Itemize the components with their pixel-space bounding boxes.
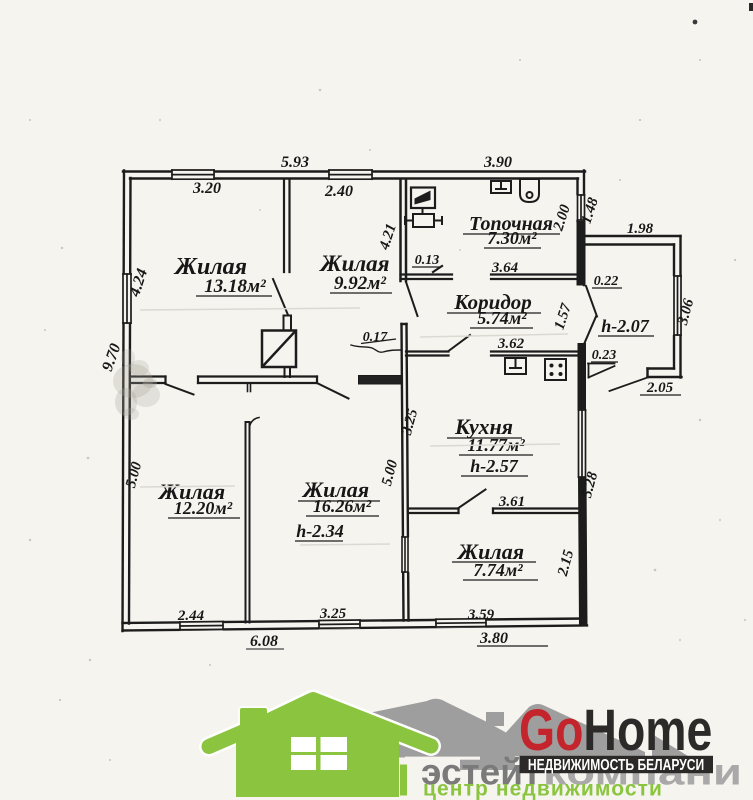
svg-text:5.93: 5.93 [281, 154, 309, 171]
svg-text:0.13: 0.13 [415, 253, 440, 268]
svg-text:2.44: 2.44 [177, 608, 205, 624]
svg-text:3.90: 3.90 [483, 154, 512, 171]
svg-text:h-2.07: h-2.07 [601, 316, 650, 336]
svg-text:0.22: 0.22 [594, 274, 619, 289]
svg-text:1.98: 1.98 [627, 221, 654, 237]
svg-text:3.61: 3.61 [498, 494, 525, 510]
svg-text:h-2.57: h-2.57 [470, 456, 519, 476]
svg-text:2.40: 2.40 [324, 183, 353, 200]
svg-text:12.20м²: 12.20м² [174, 498, 233, 518]
svg-text:16.26м²: 16.26м² [313, 496, 372, 516]
svg-text:3.59: 3.59 [467, 607, 495, 623]
svg-text:7.74м²: 7.74м² [473, 560, 523, 580]
svg-text:0.23: 0.23 [592, 348, 617, 363]
svg-text:9.92м²: 9.92м² [334, 273, 387, 294]
svg-text:3.25: 3.25 [319, 606, 347, 622]
svg-text:13.18м²: 13.18м² [204, 276, 267, 297]
svg-text:GoHome: GoHome [519, 698, 712, 763]
svg-text:центр недвижимости: центр недвижимости [423, 778, 663, 800]
svg-text:h-2.34: h-2.34 [296, 521, 344, 541]
svg-text:3.64: 3.64 [491, 260, 519, 276]
svg-text:5.74м²: 5.74м² [477, 308, 527, 328]
svg-text:НЕДВИЖИМОСТЬ БЕЛАРУСИ: НЕДВИЖИМОСТЬ БЕЛАРУСИ [528, 756, 704, 774]
svg-text:7.30м²: 7.30м² [487, 228, 537, 248]
svg-text:3.62: 3.62 [497, 336, 525, 352]
svg-text:3.80: 3.80 [479, 630, 508, 647]
svg-text:6.08: 6.08 [250, 633, 278, 650]
svg-text:2.05: 2.05 [646, 380, 674, 396]
svg-text:3.20: 3.20 [192, 180, 221, 197]
